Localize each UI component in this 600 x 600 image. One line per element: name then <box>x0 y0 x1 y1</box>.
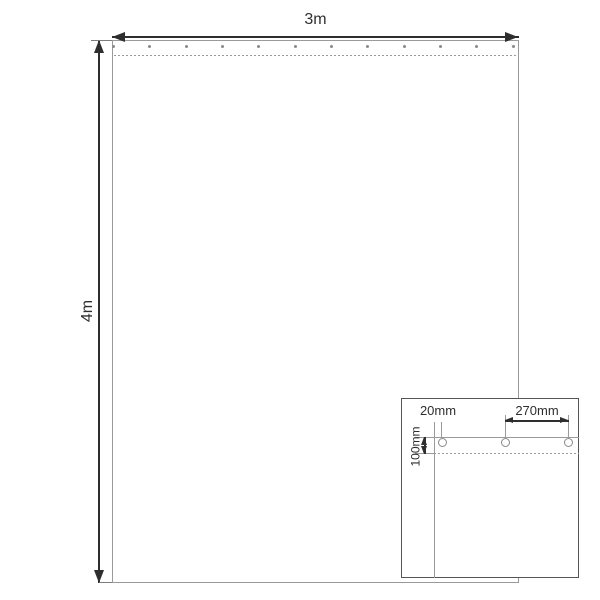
hem-depth-label: 100mm <box>410 419 423 475</box>
edge-offset-extension-line <box>441 422 442 438</box>
width-arrowhead-left-icon <box>112 32 125 42</box>
spacing-extension-line-right <box>568 415 569 438</box>
detail-eyelet-icon <box>438 438 447 447</box>
eyelet-dot <box>294 45 297 48</box>
eyelet-dot <box>148 45 151 48</box>
height-extension-tick-top <box>91 40 112 41</box>
eyelet-dot <box>221 45 224 48</box>
eyelet-dot <box>112 45 115 48</box>
eyelet-dot <box>512 45 515 48</box>
height-extension-tick-bottom <box>99 582 112 583</box>
detail-left-edge <box>434 422 435 578</box>
eyelet-dot <box>330 45 333 48</box>
eyelet-dot <box>439 45 442 48</box>
height-dimension-line <box>98 40 100 583</box>
width-dimension-label: 3m <box>112 10 519 30</box>
detail-stitch-line <box>434 453 579 454</box>
eyelet-dot <box>185 45 188 48</box>
height-dimension-label: 4m <box>78 281 98 341</box>
detail-eyelet-icon <box>564 438 573 447</box>
width-arrowhead-right-icon <box>505 32 518 42</box>
tarp-dimension-diagram: 3m 4m 20mm 270mm 100mm <box>0 0 600 600</box>
hem-stitch-line <box>114 55 517 56</box>
detail-eyelet-icon <box>501 438 510 447</box>
spacing-label: 270mm <box>497 404 577 418</box>
detail-inset: 20mm 270mm 100mm <box>401 398 579 578</box>
edge-offset-label: 20mm <box>408 404 468 418</box>
width-dimension-line <box>112 36 519 38</box>
eyelet-dot <box>403 45 406 48</box>
height-arrowhead-top-icon <box>94 40 104 53</box>
